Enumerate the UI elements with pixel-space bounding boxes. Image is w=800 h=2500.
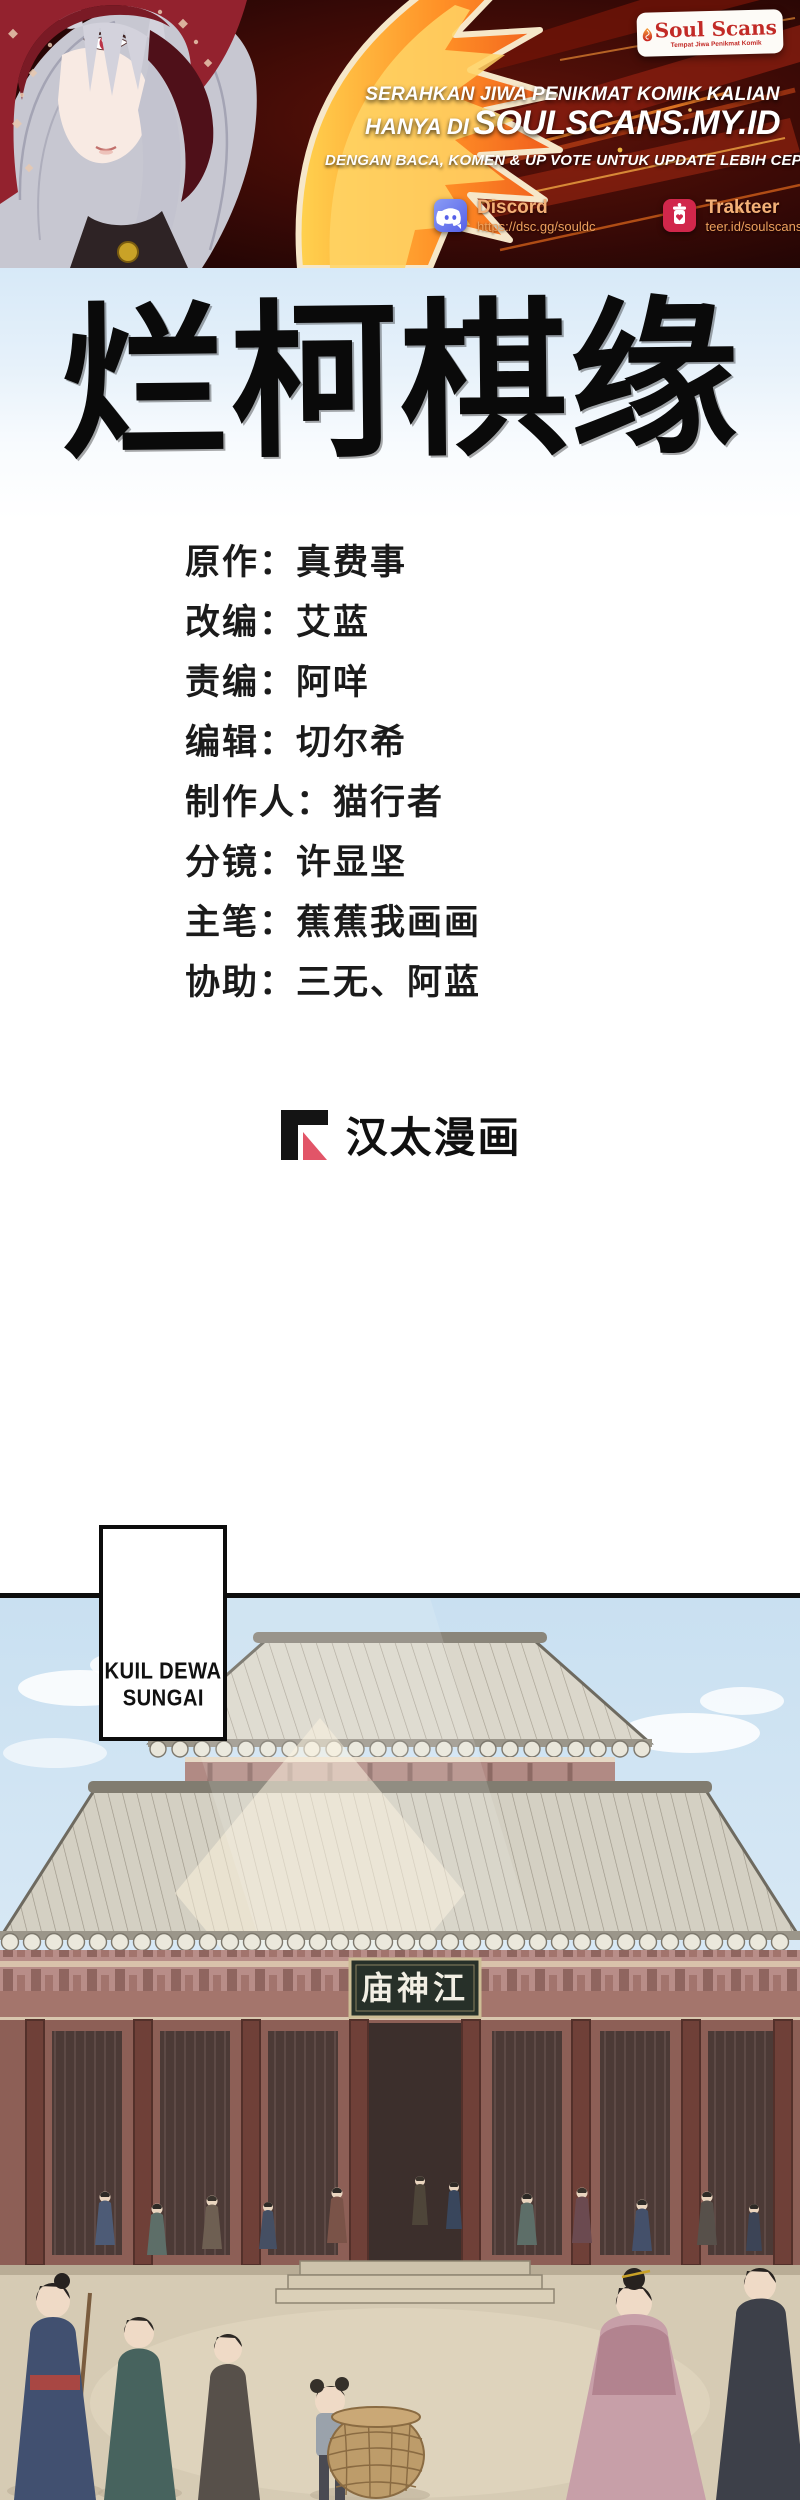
credit-role: 制作人 bbox=[185, 783, 296, 823]
banner-subline-prefix: HANYA DI bbox=[365, 114, 469, 139]
credit-row-adaptation: 改编：艾蓝 bbox=[185, 606, 481, 641]
credit-role: 改编 bbox=[185, 603, 259, 643]
credit-colon: ： bbox=[259, 663, 296, 703]
credit-colon: ： bbox=[259, 843, 296, 883]
banner-headline: SERAHKAN JIWA PENIKMAT KOMIK KALIAN bbox=[345, 84, 800, 106]
trakteer-label: Trakteer bbox=[706, 198, 800, 218]
credit-colon: ： bbox=[259, 963, 296, 1003]
credit-name: 三无、阿蓝 bbox=[296, 963, 481, 1003]
caption-line-1: KUIL DEWA bbox=[104, 1659, 221, 1686]
trakteer-url: teer.id/soulscans bbox=[706, 219, 800, 234]
discord-url: https://dsc.gg/souldc bbox=[477, 219, 596, 234]
credit-name: 切尔希 bbox=[296, 723, 407, 763]
credits-list: 原作：真费事 改编：艾蓝 责编：阿咩 编辑：切尔希 制作人：猫行者 分镜：许显坚… bbox=[185, 546, 481, 1001]
credit-row-chief-editor: 责编：阿咩 bbox=[185, 666, 481, 701]
caption-line-2: SUNGAI bbox=[122, 1686, 203, 1713]
character-art bbox=[0, 0, 257, 268]
credit-role: 责编 bbox=[185, 663, 259, 703]
credit-name: 艾蓝 bbox=[296, 603, 370, 643]
temple-sign-plaque: 庙神江 bbox=[350, 1959, 480, 2017]
title-section: 烂柯棋缘 bbox=[0, 268, 800, 520]
soul-scans-logo: Soul Scans Tempat Jiwa Penikmat Komik bbox=[636, 9, 783, 57]
credit-row-assistants: 协助：三无、阿蓝 bbox=[185, 966, 481, 1001]
credit-name: 阿咩 bbox=[296, 663, 370, 703]
soul-scans-name: Soul Scans bbox=[654, 16, 777, 41]
caption-box: KUIL DEWA SUNGAI bbox=[99, 1525, 227, 1741]
credit-colon: ： bbox=[259, 543, 296, 583]
credit-role: 协助 bbox=[185, 963, 259, 1003]
scanlation-banner: Soul Scans Tempat Jiwa Penikmat Komik SE… bbox=[0, 0, 800, 268]
banner-subline: HANYA DI SOULSCANS.MY.ID bbox=[345, 104, 800, 143]
credit-row-original-author: 原作：真费事 bbox=[185, 546, 481, 581]
trakteer-icon bbox=[662, 198, 697, 233]
credit-name: 真费事 bbox=[296, 543, 407, 583]
credit-role: 分镜 bbox=[185, 843, 259, 883]
publisher-logo: 汉太漫画 bbox=[0, 1104, 800, 1165]
credit-colon: ： bbox=[259, 723, 296, 763]
credit-role: 原作 bbox=[185, 543, 259, 583]
soul-scans-flame-icon bbox=[640, 15, 656, 53]
credit-row-storyboard: 分镜：许显坚 bbox=[185, 846, 481, 881]
credit-role: 编辑 bbox=[185, 723, 259, 763]
discord-icon bbox=[433, 198, 468, 233]
credit-colon: ： bbox=[259, 903, 296, 943]
discord-link[interactable]: Discord https://dsc.gg/souldc bbox=[433, 198, 596, 234]
publisher-mark-icon bbox=[278, 1107, 334, 1163]
credit-name: 猫行者 bbox=[333, 783, 444, 823]
credit-name: 蕉蕉我画画 bbox=[296, 903, 481, 943]
comic-page: Soul Scans Tempat Jiwa Penikmat Komik SE… bbox=[0, 0, 800, 2500]
temple-sign-text: 庙神江 bbox=[361, 1970, 469, 2006]
comic-panel: 庙神江 bbox=[0, 1593, 800, 2500]
discord-label: Discord bbox=[477, 198, 596, 218]
credit-row-lead-artist: 主笔：蕉蕉我画画 bbox=[185, 906, 481, 941]
credit-colon: ： bbox=[259, 603, 296, 643]
soul-scans-tagline: Tempat Jiwa Penikmat Komik bbox=[671, 40, 762, 49]
credit-colon: ： bbox=[296, 783, 333, 823]
credit-row-editor: 编辑：切尔希 bbox=[185, 726, 481, 761]
trakteer-link[interactable]: Trakteer teer.id/soulscans bbox=[662, 198, 800, 234]
series-title-calligraphy: 烂柯棋缘 bbox=[0, 270, 800, 493]
credit-role: 主笔 bbox=[185, 903, 259, 943]
credit-row-producer: 制作人：猫行者 bbox=[185, 786, 481, 821]
banner-site-url: SOULSCANS.MY.ID bbox=[473, 104, 780, 142]
credit-name: 许显坚 bbox=[296, 843, 407, 883]
social-links-row: Discord https://dsc.gg/souldc Trakteer t… bbox=[433, 198, 800, 234]
banner-note: DENGAN BACA, KOMEN & UP VOTE UNTUK UPDAT… bbox=[325, 152, 800, 169]
publisher-name: 汉太漫画 bbox=[345, 1104, 521, 1165]
